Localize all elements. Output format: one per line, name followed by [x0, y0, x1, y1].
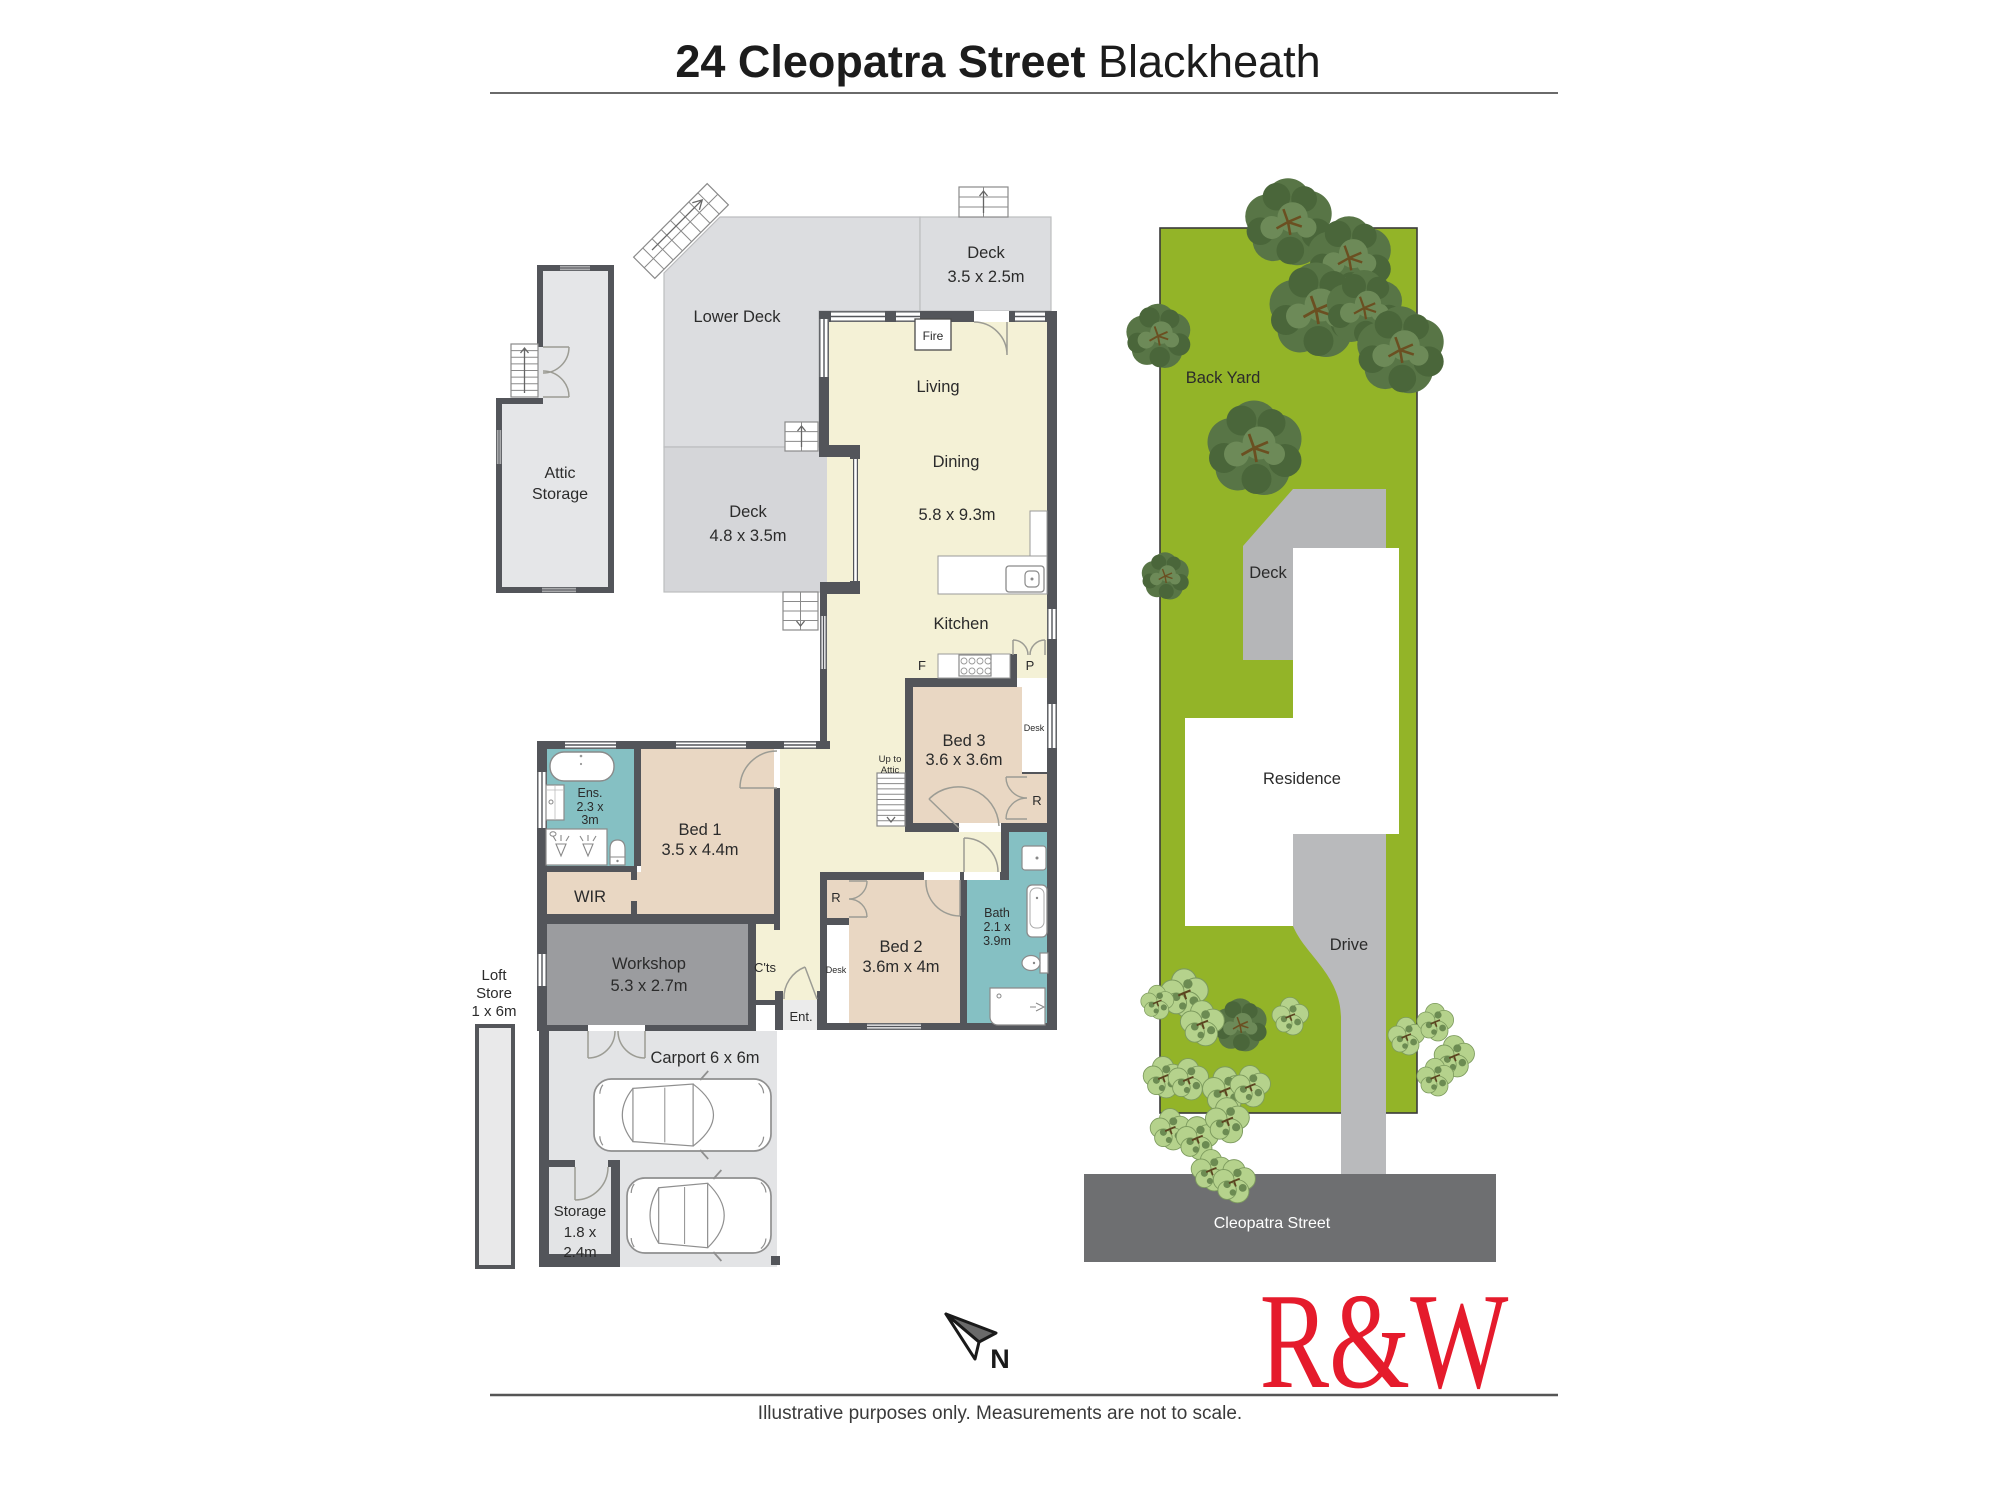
- svg-text:Bed 3: Bed 3: [942, 732, 985, 750]
- svg-text:Store: Store: [476, 985, 512, 1002]
- svg-text:2.4m: 2.4m: [563, 1244, 596, 1261]
- svg-text:1.8 x: 1.8 x: [564, 1224, 597, 1241]
- svg-text:Desk: Desk: [1024, 723, 1045, 733]
- svg-text:2.1 x: 2.1 x: [983, 920, 1011, 934]
- svg-text:Deck: Deck: [1249, 564, 1287, 582]
- svg-text:Ens.: Ens.: [577, 786, 602, 800]
- svg-text:Residence: Residence: [1263, 770, 1341, 788]
- svg-text:3.5 x 2.5m: 3.5 x 2.5m: [947, 268, 1024, 286]
- svg-text:Bed 2: Bed 2: [879, 938, 922, 956]
- svg-text:Up to: Up to: [879, 754, 902, 765]
- svg-text:Workshop: Workshop: [612, 955, 686, 973]
- svg-text:Lower Deck: Lower Deck: [693, 308, 781, 326]
- svg-text:3.6m x 4m: 3.6m x 4m: [862, 958, 939, 976]
- svg-text:Deck: Deck: [967, 244, 1005, 262]
- svg-text:3.5 x 4.4m: 3.5 x 4.4m: [661, 841, 738, 859]
- svg-text:Loft: Loft: [481, 967, 507, 984]
- svg-text:Bath: Bath: [984, 906, 1010, 920]
- svg-text:24 Cleopatra Street Blackheath: 24 Cleopatra Street Blackheath: [675, 36, 1320, 87]
- svg-text:WIR: WIR: [574, 888, 606, 906]
- svg-text:Drive: Drive: [1330, 936, 1369, 954]
- svg-text:Dining: Dining: [933, 453, 980, 471]
- svg-text:3.6 x 3.6m: 3.6 x 3.6m: [925, 751, 1002, 769]
- svg-text:F: F: [918, 658, 926, 673]
- svg-text:Deck: Deck: [729, 503, 767, 521]
- svg-text:Attic: Attic: [881, 765, 900, 776]
- svg-text:5.3 x 2.7m: 5.3 x 2.7m: [610, 977, 687, 995]
- svg-text:R: R: [831, 890, 840, 905]
- svg-text:1 x 6m: 1 x 6m: [471, 1003, 516, 1020]
- svg-text:Living: Living: [916, 378, 959, 396]
- svg-text:C'ts: C'ts: [754, 960, 776, 975]
- svg-text:Bed 1: Bed 1: [678, 821, 721, 839]
- svg-text:Back Yard: Back Yard: [1186, 369, 1261, 387]
- svg-text:3m: 3m: [581, 813, 598, 827]
- svg-text:Kitchen: Kitchen: [933, 615, 988, 633]
- svg-text:N: N: [990, 1344, 1010, 1374]
- svg-text:3.9m: 3.9m: [983, 934, 1011, 948]
- svg-text:Fire: Fire: [923, 329, 944, 343]
- svg-text:Attic: Attic: [544, 465, 575, 482]
- svg-text:4.8 x 3.5m: 4.8 x 3.5m: [709, 527, 786, 545]
- svg-text:Cleopatra Street: Cleopatra Street: [1214, 1215, 1331, 1232]
- svg-text:Desk: Desk: [826, 965, 847, 975]
- svg-text:P: P: [1026, 658, 1035, 673]
- svg-text:Carport 6 x 6m: Carport 6 x 6m: [650, 1049, 759, 1067]
- svg-text:Storage: Storage: [554, 1203, 607, 1220]
- svg-text:Ent.: Ent.: [789, 1009, 812, 1024]
- svg-text:R: R: [1032, 793, 1041, 808]
- svg-text:2.3 x: 2.3 x: [576, 800, 604, 814]
- svg-text:Illustrative purposes only. Me: Illustrative purposes only. Measurements…: [758, 1403, 1242, 1424]
- svg-text:5.8 x 9.3m: 5.8 x 9.3m: [918, 506, 995, 524]
- svg-text:Storage: Storage: [532, 486, 588, 503]
